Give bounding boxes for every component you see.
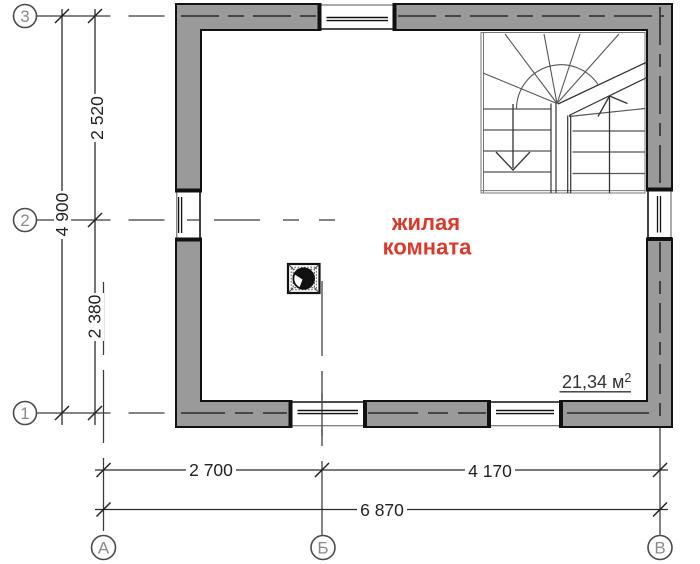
svg-text:6 870: 6 870	[360, 500, 404, 520]
svg-text:2 520: 2 520	[87, 96, 107, 140]
svg-text:4 170: 4 170	[468, 461, 512, 481]
svg-text:2 380: 2 380	[85, 294, 105, 338]
svg-text:Б: Б	[317, 539, 328, 558]
svg-text:1: 1	[20, 404, 29, 423]
svg-text:4 900: 4 900	[52, 192, 72, 236]
svg-text:А: А	[98, 539, 110, 558]
svg-text:3: 3	[20, 7, 29, 26]
svg-text:В: В	[654, 539, 665, 558]
svg-text:21,34 м2: 21,34 м2	[562, 371, 631, 392]
svg-text:жилая: жилая	[391, 210, 460, 235]
svg-text:2: 2	[20, 211, 29, 230]
svg-text:комната: комната	[383, 235, 472, 260]
svg-text:2 700: 2 700	[189, 460, 233, 480]
